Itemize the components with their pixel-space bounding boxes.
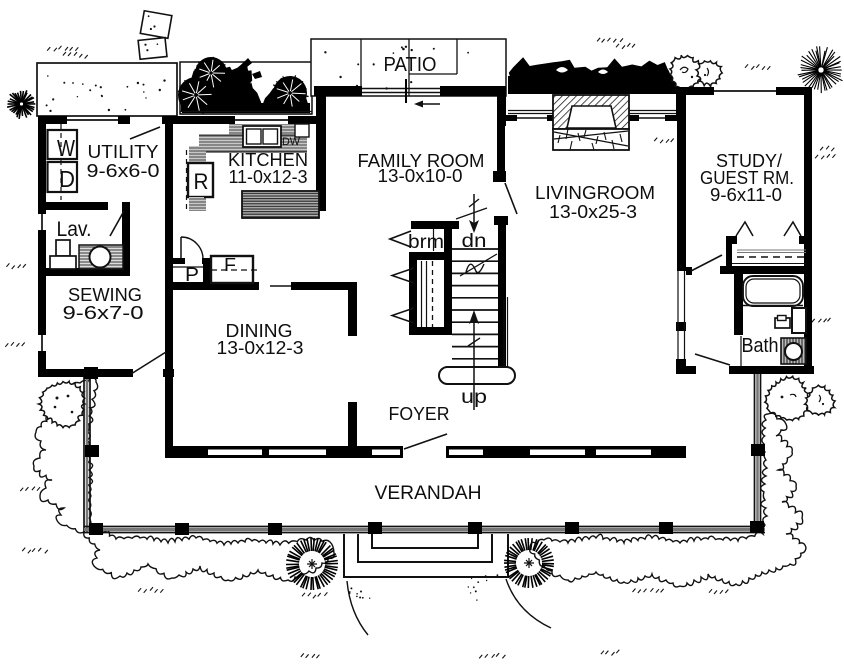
svg-text:Lav.: Lav. — [57, 218, 92, 241]
svg-text:brm: brm — [408, 232, 444, 253]
svg-text:VERANDAH: VERANDAH — [375, 483, 482, 504]
svg-text:13-0x12-3: 13-0x12-3 — [217, 338, 304, 358]
svg-text:P: P — [185, 265, 199, 286]
svg-text:13-0x10-0: 13-0x10-0 — [378, 166, 463, 186]
svg-text:9-6x6-0: 9-6x6-0 — [87, 161, 160, 181]
svg-text:9-6x7-0: 9-6x7-0 — [63, 303, 144, 323]
svg-text:9-6x11-0: 9-6x11-0 — [710, 185, 782, 205]
svg-text:DW: DW — [282, 136, 301, 148]
svg-text:LIVINGROOM: LIVINGROOM — [535, 183, 655, 203]
svg-text:UTILITY: UTILITY — [88, 142, 159, 162]
svg-text:up: up — [461, 387, 487, 408]
svg-text:FOYER: FOYER — [389, 404, 450, 424]
svg-text:dn: dn — [462, 231, 487, 252]
svg-text:F: F — [224, 255, 236, 275]
svg-text:SEWING: SEWING — [68, 285, 142, 305]
svg-text:Bath: Bath — [742, 335, 779, 357]
svg-text:PATIO: PATIO — [384, 54, 437, 76]
svg-text:13-0x25-3: 13-0x25-3 — [549, 202, 637, 222]
svg-text:R: R — [194, 169, 209, 194]
svg-text:11-0x12-3: 11-0x12-3 — [229, 167, 308, 187]
svg-text:W: W — [57, 135, 75, 161]
